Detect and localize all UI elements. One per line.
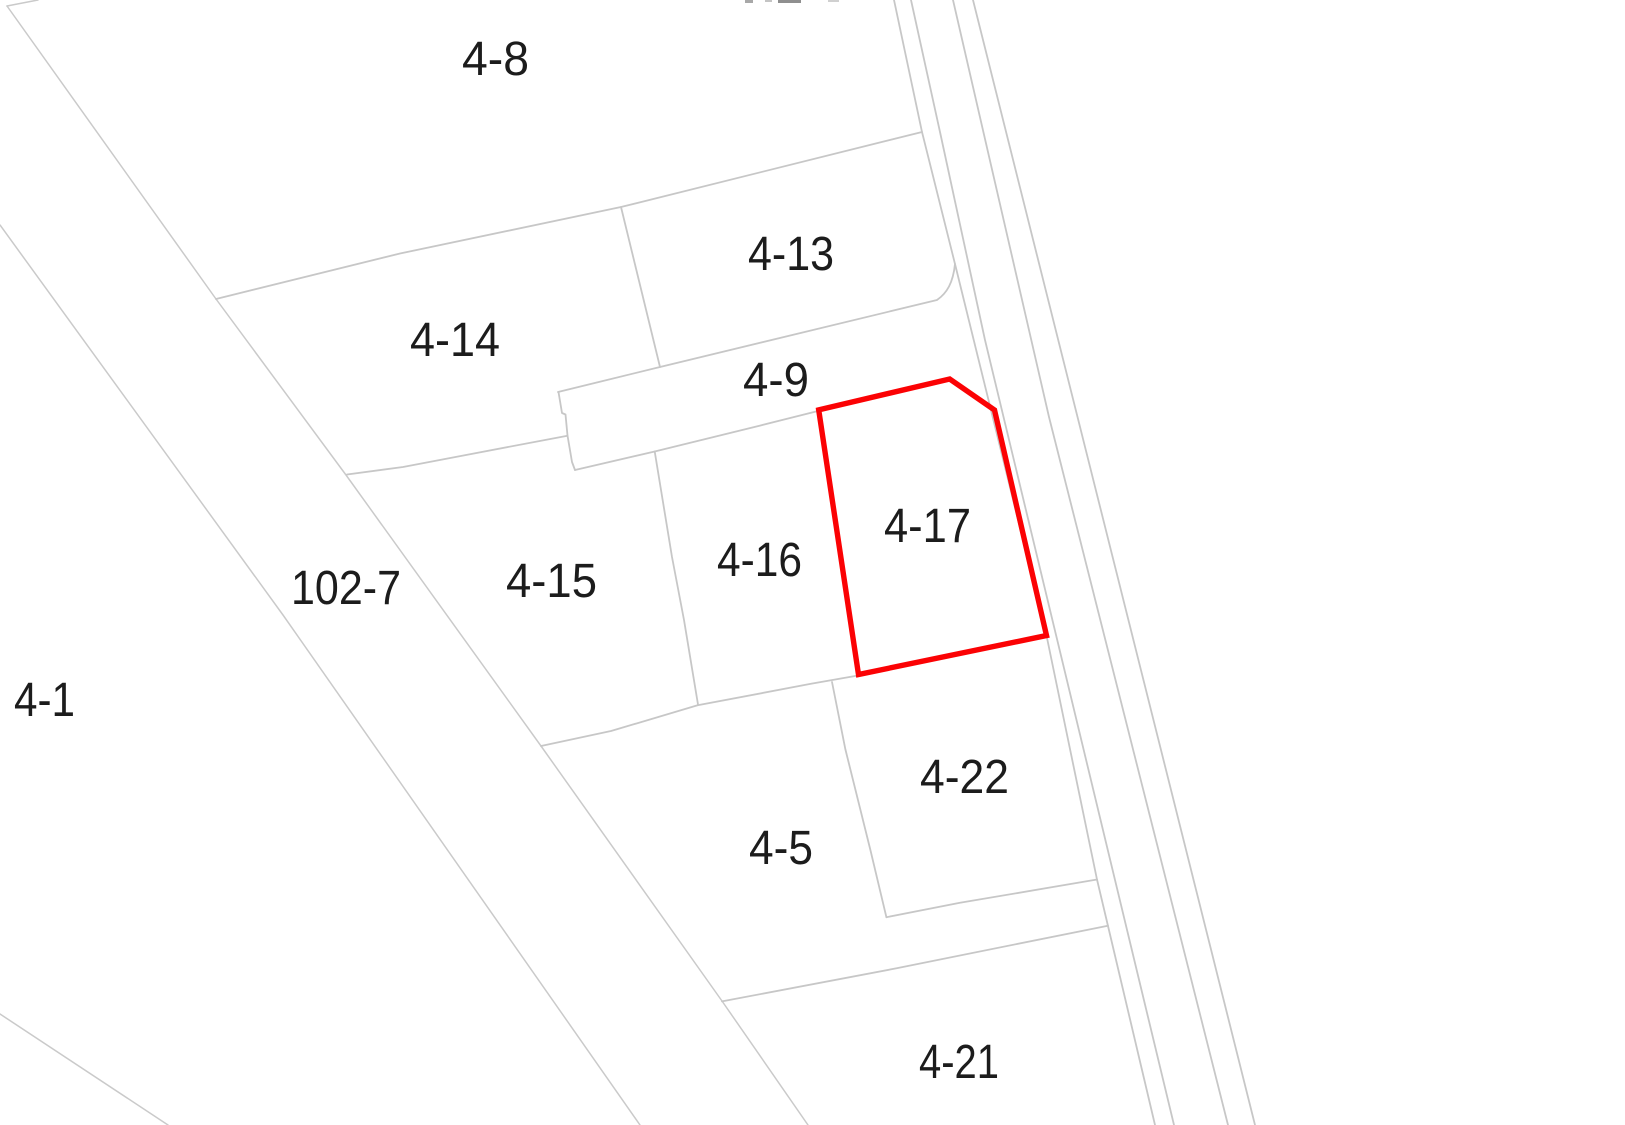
svg-text:4-1: 4-1 [14, 674, 75, 727]
svg-text:4-8: 4-8 [462, 33, 529, 86]
svg-text:4-16: 4-16 [717, 534, 802, 587]
svg-text:4-15: 4-15 [506, 555, 597, 608]
svg-text:4-22: 4-22 [920, 751, 1009, 804]
svg-text:4-17: 4-17 [884, 500, 971, 553]
svg-text:4-9: 4-9 [743, 354, 809, 407]
svg-text:4-5: 4-5 [749, 822, 813, 875]
svg-text:4-14: 4-14 [410, 314, 500, 367]
svg-text:102-7: 102-7 [291, 562, 401, 615]
svg-text:4-21: 4-21 [919, 1036, 999, 1089]
svg-text:4-13: 4-13 [748, 228, 834, 281]
